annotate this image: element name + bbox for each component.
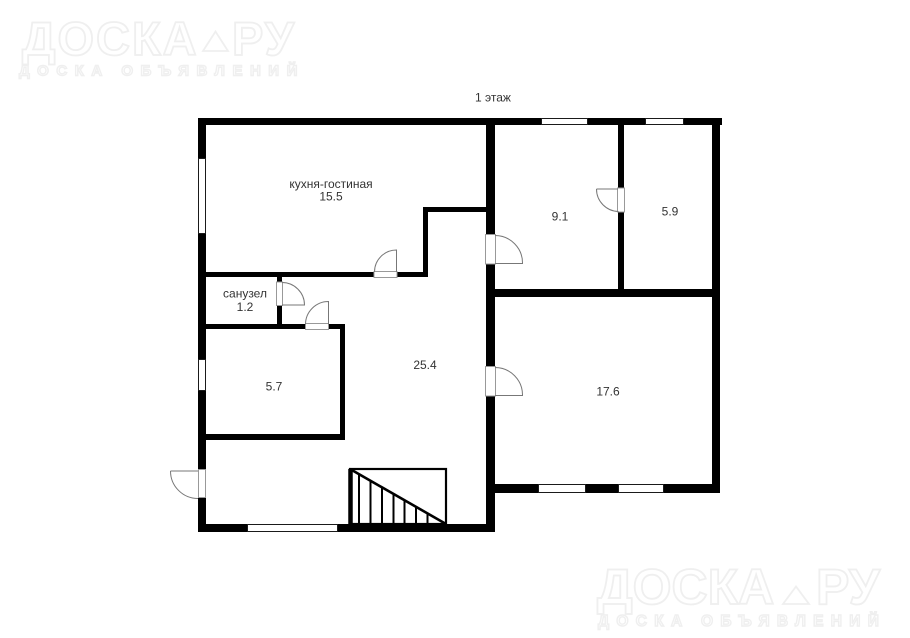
svg-text:РУ: РУ (232, 12, 296, 65)
svg-text:17.6: 17.6 (596, 385, 620, 399)
svg-text:ДОСКА: ДОСКА (22, 12, 199, 65)
svg-text:1.2: 1.2 (237, 300, 254, 314)
svg-text:25.4: 25.4 (413, 358, 437, 372)
svg-text:1 этаж: 1 этаж (475, 91, 511, 105)
svg-text:ДОСКА ОБЪЯВЛЕНИЙ: ДОСКА ОБЪЯВЛЕНИЙ (598, 612, 886, 630)
svg-text:15.5: 15.5 (319, 190, 343, 204)
svg-text:РУ: РУ (816, 559, 881, 615)
svg-text:9.1: 9.1 (552, 210, 569, 224)
svg-text:5.9: 5.9 (662, 205, 679, 219)
svg-text:ДОСКА: ДОСКА (597, 559, 774, 615)
svg-text:5.7: 5.7 (266, 380, 283, 394)
svg-text:санузел: санузел (223, 287, 267, 301)
svg-text:ДОСКА ОБЪЯВЛЕНИЙ: ДОСКА ОБЪЯВЛЕНИЙ (19, 62, 305, 80)
